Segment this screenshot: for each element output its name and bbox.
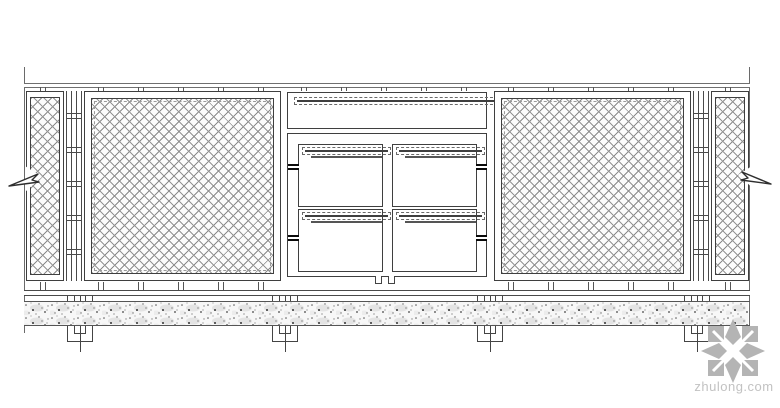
post-right xyxy=(693,91,709,281)
hinge-mark xyxy=(288,235,299,242)
bottom-tick-strip xyxy=(711,282,749,290)
mesh-infill xyxy=(91,98,274,274)
bottom-rail xyxy=(24,290,750,296)
post-ticks xyxy=(693,91,709,281)
center-cell-top-left xyxy=(298,144,383,207)
panel-frame xyxy=(399,150,482,152)
top-tick-strip xyxy=(287,87,487,91)
watermark-text: zhulong.com xyxy=(690,379,778,394)
top-strip-panel xyxy=(287,92,487,129)
panel-frame xyxy=(305,150,388,152)
center-cell-bottom-left xyxy=(298,209,383,272)
divider-foot xyxy=(388,276,395,284)
divider-foot xyxy=(375,276,382,284)
mesh-panel-left-large xyxy=(84,91,281,281)
hinge-mark xyxy=(476,164,487,171)
post-ticks xyxy=(66,91,82,281)
mesh-panel-right-large xyxy=(494,91,691,281)
bottom-tick-strip xyxy=(26,282,64,290)
post-left xyxy=(66,91,82,281)
concrete-band xyxy=(24,301,750,326)
concrete-stipple-texture xyxy=(24,302,748,325)
mesh-infill xyxy=(405,156,476,158)
hinge-mark xyxy=(288,164,299,171)
blank-infill xyxy=(311,221,382,223)
bottom-tick-strip xyxy=(84,282,281,290)
hinge-mark xyxy=(476,235,487,242)
panel-frame xyxy=(305,215,388,217)
center-cell-top-right xyxy=(392,144,477,207)
panel-frame xyxy=(399,215,482,217)
mesh-infill xyxy=(405,221,476,223)
strip-panel-infill-blank xyxy=(297,100,495,102)
mesh-infill xyxy=(501,98,684,274)
mesh-infill xyxy=(311,156,382,158)
bottom-tick-strip xyxy=(494,282,691,290)
compass-flower-icon xyxy=(699,317,767,385)
fence-elevation-drawing: zhulong.com xyxy=(0,0,780,408)
break-arrow-right xyxy=(737,162,775,192)
center-cell-bottom-right xyxy=(392,209,477,272)
center-frame xyxy=(287,133,487,277)
break-arrow-left xyxy=(5,164,43,194)
